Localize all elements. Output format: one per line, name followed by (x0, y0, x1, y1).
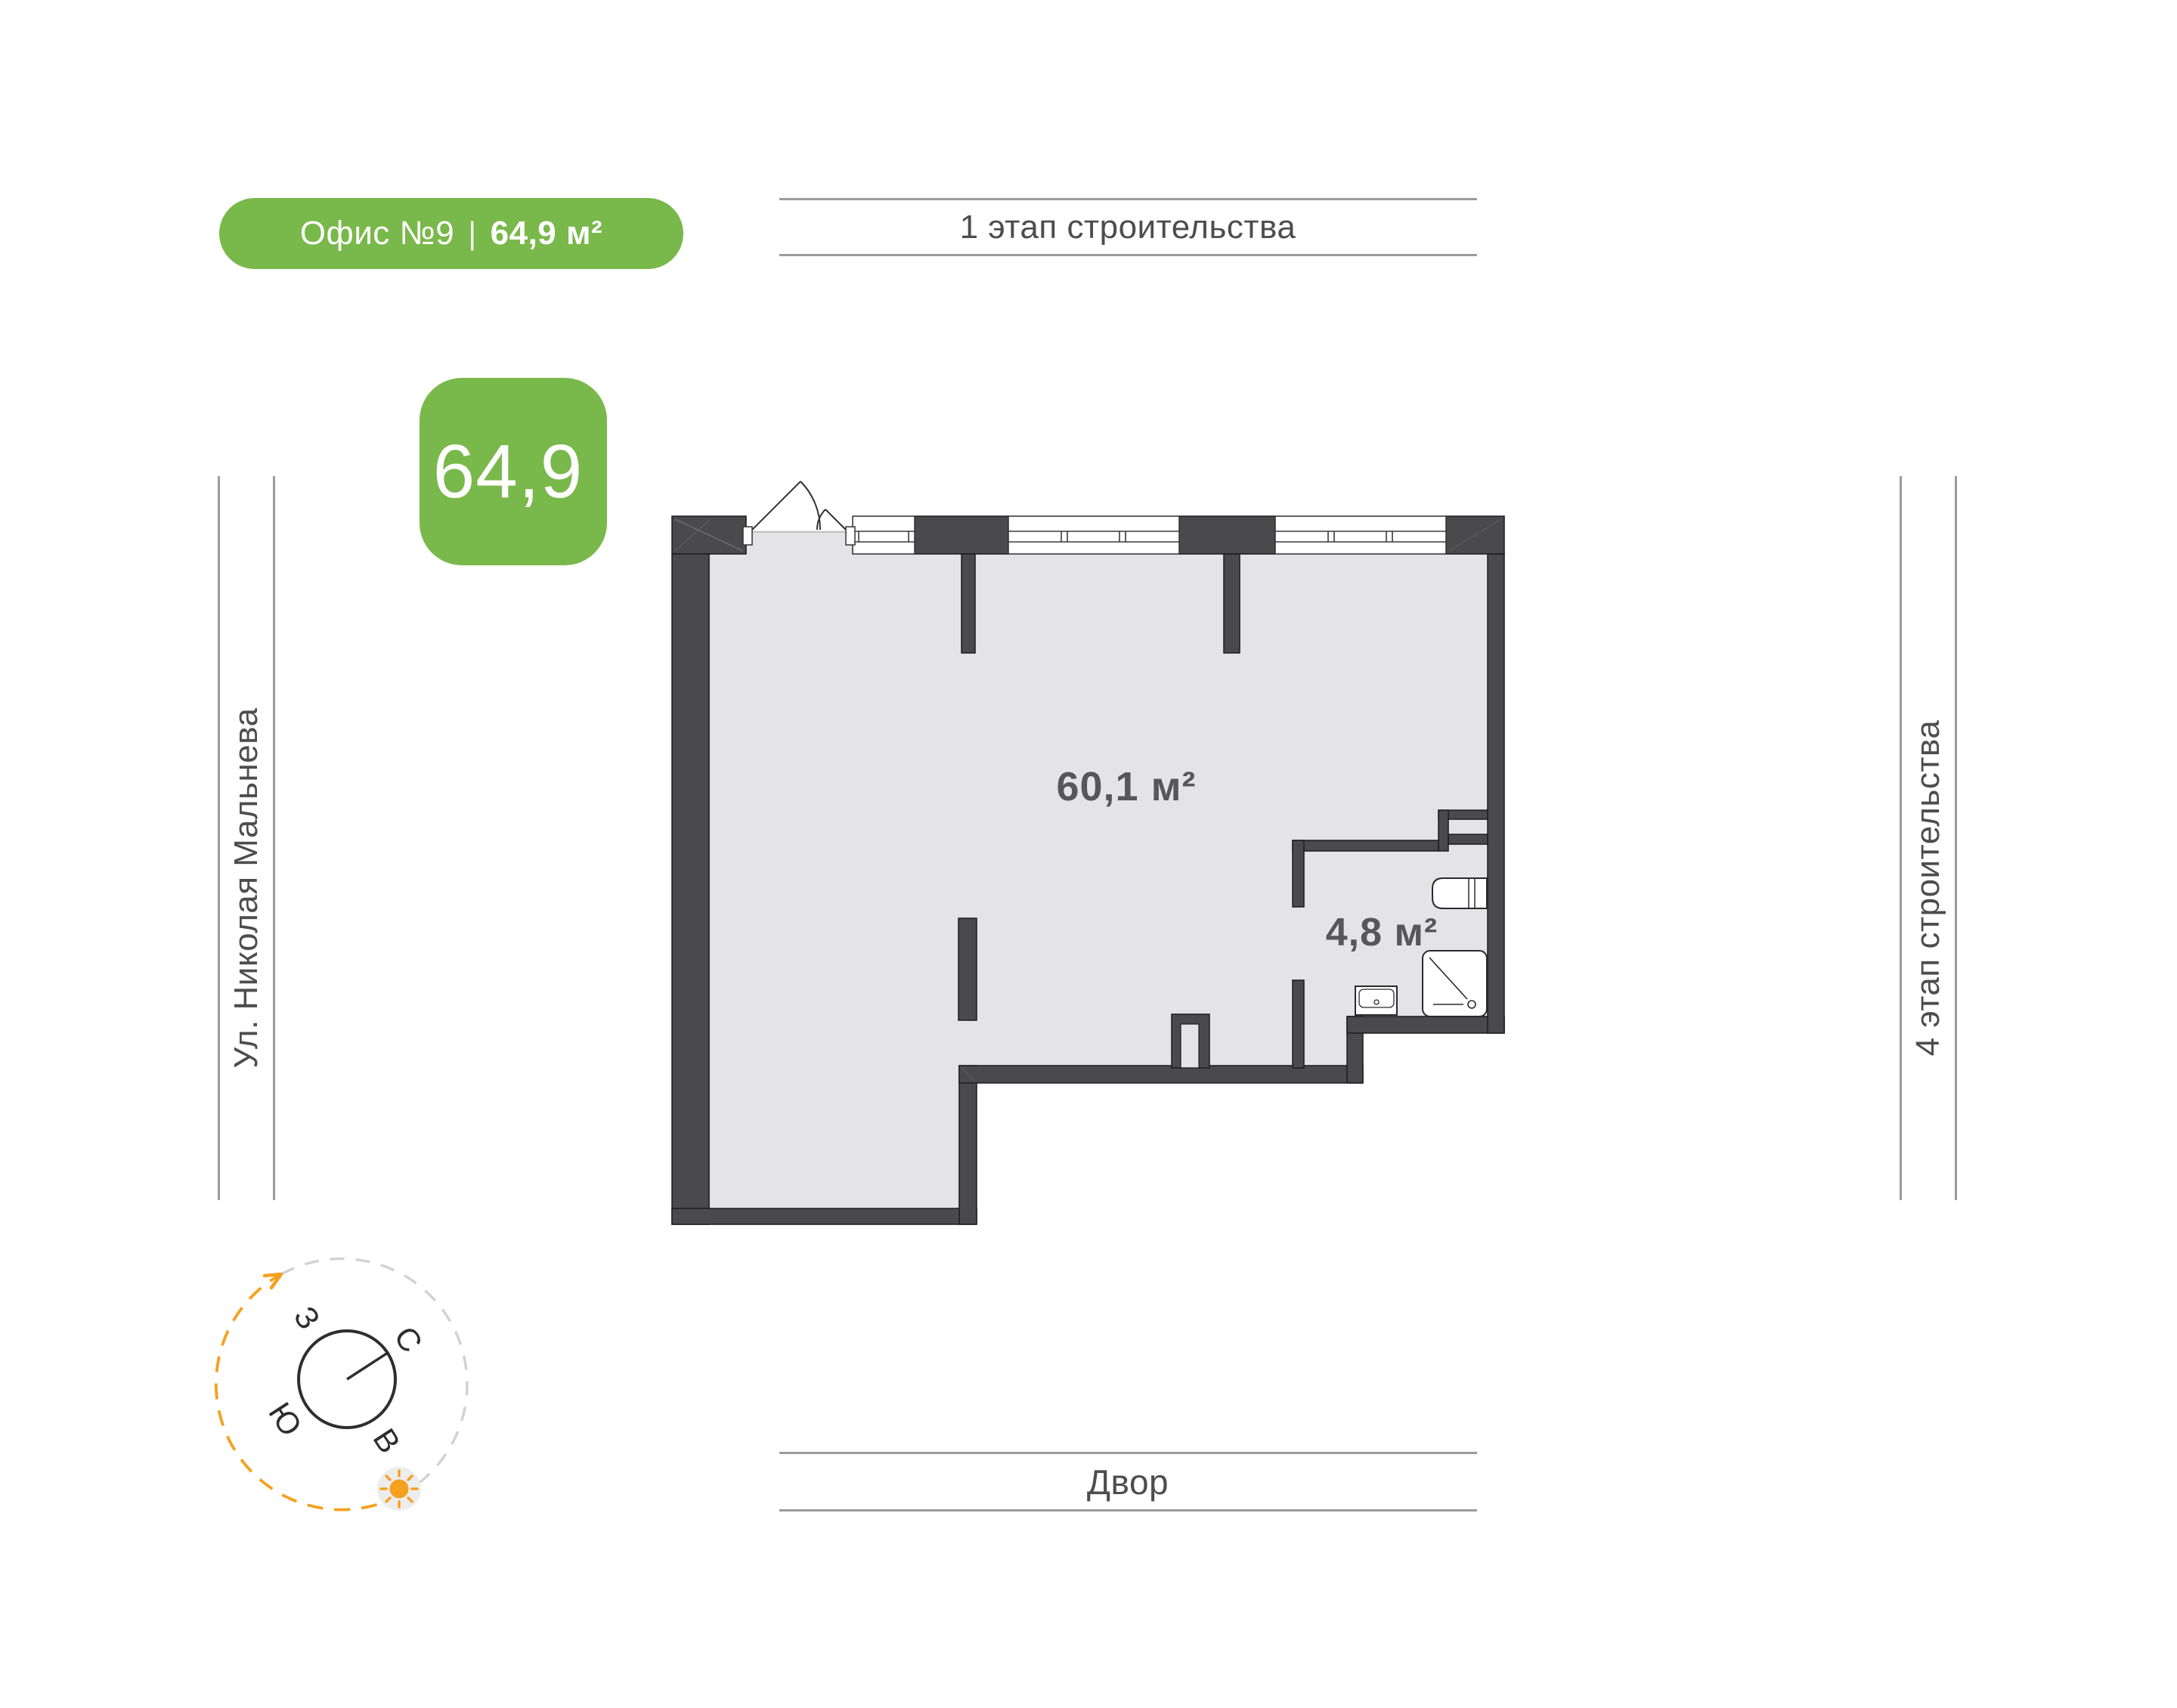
sun-icon (377, 1467, 421, 1511)
compass-icon: С Ю З В (0, 0, 2177, 1708)
compass-south-label: Ю (262, 1396, 309, 1442)
compass-east-label: В (366, 1422, 407, 1459)
compass-west-label: З (287, 1300, 327, 1335)
floorplan-page: Офис №9 | 64,9 м² 64,9 1 этап строительс… (0, 0, 2177, 1708)
compass-north-label: С (387, 1320, 429, 1359)
sun-path-arrow-icon (265, 1274, 281, 1288)
